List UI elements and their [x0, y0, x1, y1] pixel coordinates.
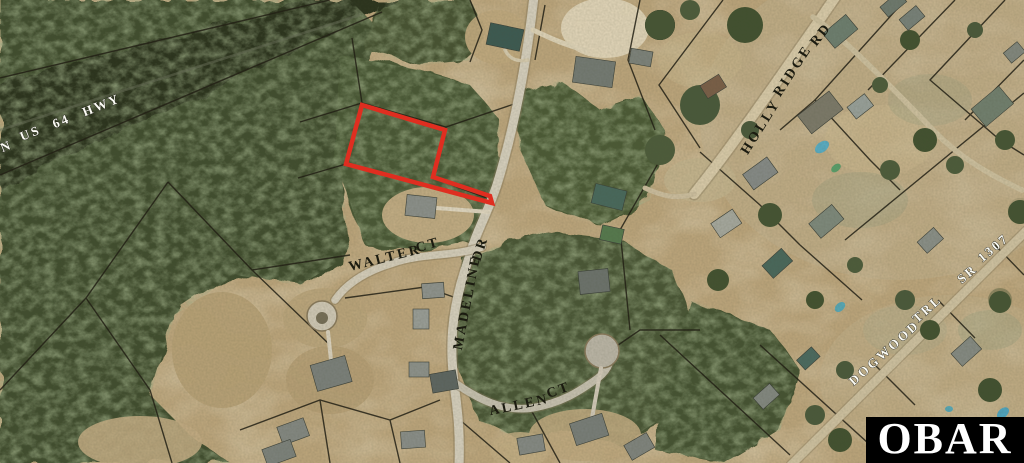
- aerial-map: N US 64 HWY WALTER CT MADELINE DR ALLEN …: [0, 0, 1024, 463]
- aerial-imagery: N US 64 HWY WALTER CT MADELINE DR ALLEN …: [0, 0, 1024, 463]
- photo-grain: [0, 0, 1024, 463]
- obar-watermark: OBAR: [866, 417, 1024, 463]
- obar-watermark-text: OBAR: [877, 417, 1012, 461]
